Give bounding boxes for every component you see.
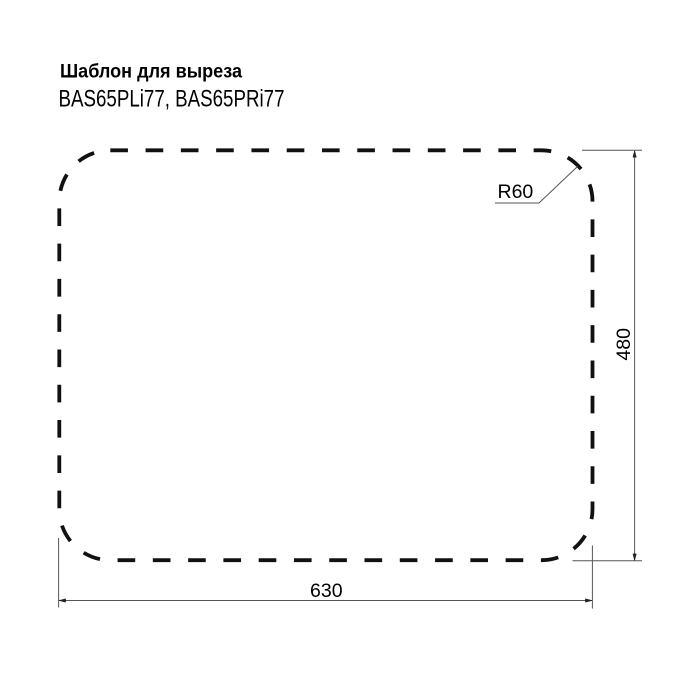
svg-text:BAS65PLi77, BAS65PRi77: BAS65PLi77, BAS65PRi77: [59, 85, 285, 112]
svg-text:Шаблон для выреза: Шаблон для выреза: [60, 61, 242, 83]
svg-text:480: 480: [613, 328, 635, 361]
svg-text:R60: R60: [498, 181, 534, 203]
svg-text:630: 630: [310, 580, 343, 602]
